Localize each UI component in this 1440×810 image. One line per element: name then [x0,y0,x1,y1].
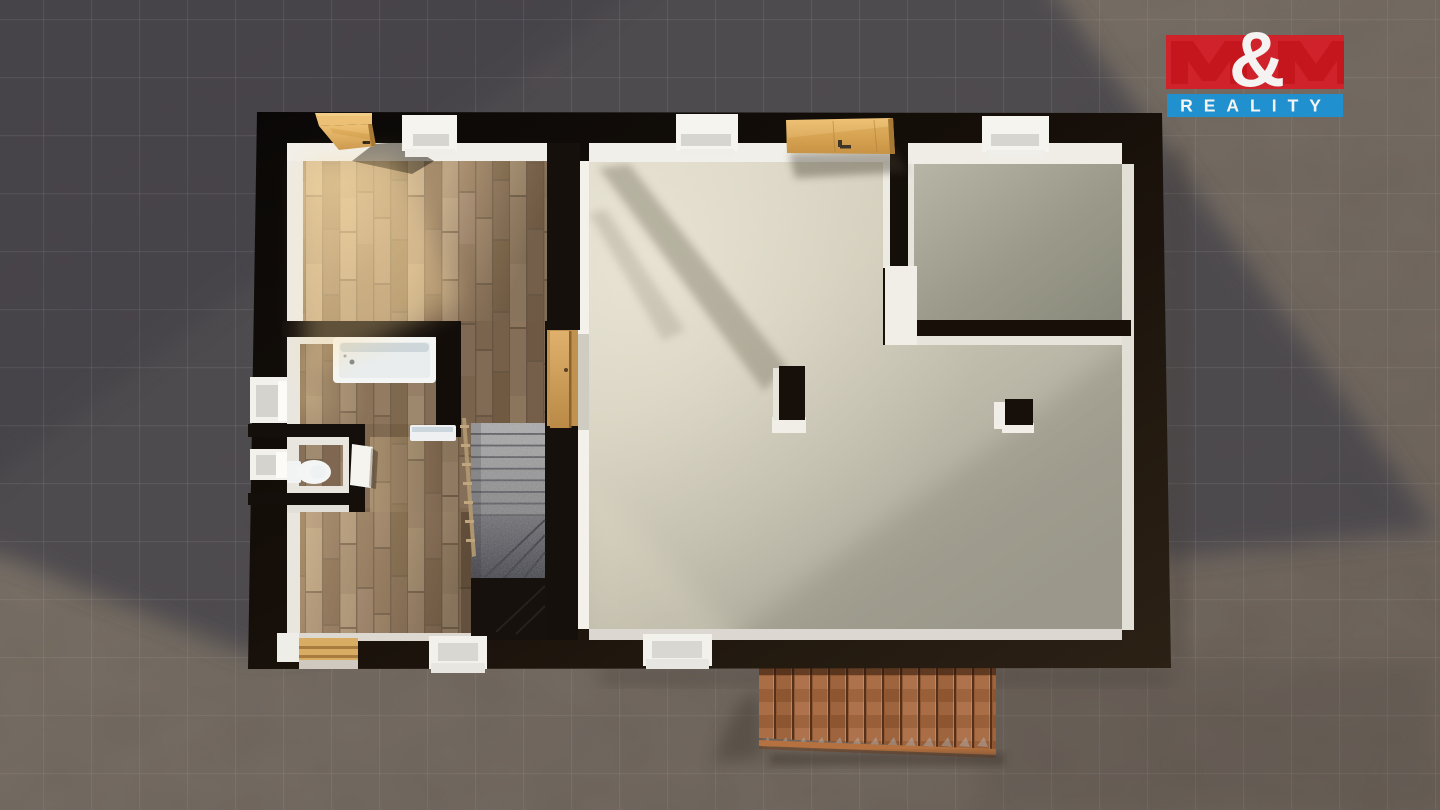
svg-text:&: & [1229,15,1285,103]
svg-text:REALITY: REALITY [1180,96,1332,116]
